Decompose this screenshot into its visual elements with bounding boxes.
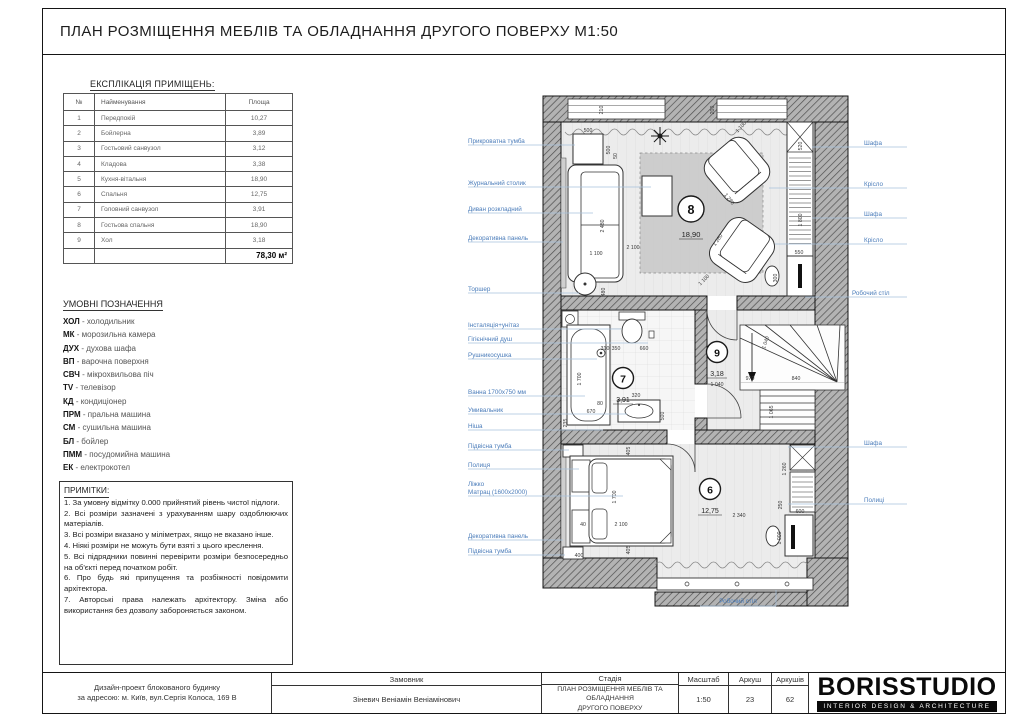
wall-panel bbox=[561, 450, 566, 554]
explication-heading: ЕКСПЛІКАЦІЯ ПРИМІЩЕНЬ: bbox=[90, 79, 215, 91]
page-title: ПЛАН РОЗМІЩЕННЯ МЕБЛІВ ТА ОБЛАДНАННЯ ДРУ… bbox=[60, 23, 618, 40]
dim-label: 1 260 bbox=[782, 462, 788, 475]
dim-label: 80 bbox=[597, 401, 603, 407]
note-item: 1. За умовну відмітку 0.000 прийнятий рі… bbox=[64, 498, 288, 509]
long-desk bbox=[657, 578, 813, 590]
dim-label: 1 000 bbox=[777, 531, 783, 544]
sheet-label: Аркуш bbox=[729, 673, 771, 686]
table-row: 3Гостьовий санвузол3,12 bbox=[64, 141, 293, 156]
legend-item: СВЧ - мікрохвильова піч bbox=[63, 368, 170, 381]
legend-heading: УМОВНІ ПОЗНАЧЕННЯ bbox=[63, 299, 163, 311]
dim-label: 400 bbox=[575, 553, 584, 559]
note-item: 2. Всі розміри зазначені з урахуванням ш… bbox=[64, 509, 288, 531]
sofa bbox=[568, 165, 623, 282]
dim-label: 200 bbox=[710, 106, 716, 115]
dim-label: 500 bbox=[584, 128, 593, 134]
callout-label: Підвісна тумба bbox=[468, 547, 512, 555]
callout-label: Журнальний столик bbox=[468, 179, 526, 187]
callout-label: Робочий стіл bbox=[719, 597, 757, 605]
dim-label: 660 bbox=[640, 346, 649, 352]
dim-label: 235 bbox=[563, 419, 569, 428]
sheet-value: 23 bbox=[729, 686, 771, 713]
sheets-value: 62 bbox=[772, 686, 808, 713]
note-item: 5. Всі підрядники повинні перевірити роз… bbox=[64, 552, 288, 574]
callout-label: Матрац (1600х2000) bbox=[468, 489, 527, 496]
logo-subtitle: INTERIOR DESIGN & ARCHITECTURE bbox=[817, 701, 996, 712]
total-area: 78,30 м² bbox=[226, 248, 293, 263]
table-row: 2Бойлерна3,89 bbox=[64, 126, 293, 141]
dim-label: 250 bbox=[778, 501, 784, 510]
callout-label: Крісло bbox=[864, 180, 883, 188]
legend-item: МК - морозильна камера bbox=[63, 328, 170, 341]
shelf bbox=[572, 460, 590, 492]
room-number: 9 bbox=[714, 348, 720, 360]
dim-label: 480 bbox=[601, 288, 607, 297]
pillow bbox=[592, 463, 607, 493]
table-total-row: 78,30 м² bbox=[64, 248, 293, 263]
floor-lamp-dot bbox=[584, 283, 587, 286]
dim-label: 50 bbox=[613, 153, 619, 159]
sheets-label: Аркушів bbox=[772, 673, 808, 686]
note-item: 4. Ніякі розміри не можуть бути взяті з … bbox=[64, 541, 288, 552]
legend-item: КД - кондиціонер bbox=[63, 395, 170, 408]
customer-cell: Замовник Зіневич Веніамін Веніамінович bbox=[271, 673, 541, 713]
studio-logo: BORISSTUDIO INTERIOR DESIGN & ARCHITECTU… bbox=[808, 673, 1005, 713]
room-number: 8 bbox=[688, 203, 695, 217]
project-description: Дизайн-проект блокованого будинку за адр… bbox=[43, 673, 271, 713]
legend-item: БЛ - бойлер bbox=[63, 435, 170, 448]
stage-cell: Стадія ПЛАН РОЗМІЩЕННЯ МЕБЛІВ ТА ОБЛАДНА… bbox=[541, 673, 678, 713]
explication-table: № Найменування Площа 1Передпокій10,27 2Б… bbox=[63, 93, 293, 264]
sheet-cell: Аркуш 23 bbox=[728, 673, 771, 713]
dim-label: 840 bbox=[792, 376, 801, 382]
stage-label: Стадія bbox=[542, 673, 678, 685]
callout-label: Полиця bbox=[468, 462, 490, 469]
callout-label: Декоративна панель bbox=[468, 235, 529, 242]
legend-item: ПРМ - пральна машина bbox=[63, 408, 170, 421]
legend-item: ПММ - посудомийна машина bbox=[63, 448, 170, 461]
dim-label: 300 bbox=[773, 274, 779, 283]
customer-value: Зіневич Веніамін Веніамінович bbox=[272, 686, 541, 713]
col-area: Площа bbox=[226, 94, 293, 111]
room-number: 7 bbox=[620, 374, 626, 386]
scale-label: Масштаб bbox=[679, 673, 728, 686]
wardrobe bbox=[790, 445, 815, 512]
callout-label: Гігієнічний душ bbox=[468, 335, 512, 343]
dim-label: 210 bbox=[599, 106, 605, 115]
table-row: 5Кухня-вітальня18,90 bbox=[64, 172, 293, 187]
callout-label: Шафа bbox=[864, 440, 882, 447]
callout-label: Ванна 1700х750 мм bbox=[468, 389, 526, 396]
legend-list: ХОЛ - холодильник МК - морозильна камера… bbox=[63, 315, 170, 475]
dim-label: 320 bbox=[632, 393, 641, 399]
dim-label: 1 700 bbox=[577, 372, 583, 385]
table-row: 6Спальня12,75 bbox=[64, 187, 293, 202]
dim-label: 405 bbox=[626, 447, 632, 456]
legend-item: СМ - сушильна машина bbox=[63, 421, 170, 434]
callout-label: Ніша bbox=[468, 422, 483, 430]
room-area: 12,75 bbox=[701, 508, 719, 515]
callout-label: Полиці bbox=[864, 496, 884, 504]
callout-label: Рушникосушка bbox=[468, 352, 512, 359]
bed bbox=[570, 456, 673, 546]
callout-label: Крісло bbox=[864, 236, 883, 244]
customer-label: Замовник bbox=[272, 673, 541, 686]
dim-label: 500 bbox=[660, 412, 666, 421]
callout-label: Інсталяція+унітаз bbox=[468, 321, 519, 329]
pillow bbox=[592, 509, 607, 539]
dim-label: 2 100 bbox=[627, 245, 640, 251]
wall-panel bbox=[561, 158, 566, 288]
note-item: 6. Про будь які припущення та розбіжност… bbox=[64, 573, 288, 595]
callout-label: Шафа bbox=[864, 140, 882, 147]
legend-item: ЕК - електрокотел bbox=[63, 461, 170, 474]
room-area: 3,18 bbox=[710, 371, 724, 378]
table-row: 9Хол3,18 bbox=[64, 233, 293, 248]
table-header-row: № Найменування Площа bbox=[64, 94, 293, 111]
dim-label: 40 bbox=[580, 522, 586, 528]
callout-label: Ліжко bbox=[468, 480, 485, 488]
table-row: 8Гостьова спальня18,90 bbox=[64, 218, 293, 233]
dim-label: 405 bbox=[626, 546, 632, 555]
dim-label: 970 bbox=[746, 376, 755, 382]
monitor bbox=[791, 525, 795, 549]
room-area: 3,91 bbox=[616, 397, 630, 404]
dim-label: 2 340 bbox=[733, 513, 746, 519]
callout-label: Робочий стіл bbox=[852, 289, 890, 297]
dim-label: 500 bbox=[606, 146, 612, 155]
logo-text: BORISSTUDIO bbox=[817, 675, 996, 700]
col-name: Найменування bbox=[95, 94, 226, 111]
hygienic-shower bbox=[649, 331, 654, 338]
col-num: № bbox=[64, 94, 95, 111]
callout-label: Торшер bbox=[468, 286, 491, 293]
table-row: 7Головний санвузол3,91 bbox=[64, 202, 293, 217]
room-number: 6 bbox=[707, 485, 713, 497]
dim-label: 2 100 bbox=[615, 522, 628, 528]
scale-cell: Масштаб 1:50 bbox=[678, 673, 728, 713]
callout-label: Прикроватна тумба bbox=[468, 137, 525, 145]
dim-label: 600 bbox=[796, 509, 805, 515]
legend-item: ВП - варочна поверхня bbox=[63, 355, 170, 368]
title-band: ПЛАН РОЗМІЩЕННЯ МЕБЛІВ ТА ОБЛАДНАННЯ ДРУ… bbox=[42, 8, 1006, 55]
notes-heading: ПРИМІТКИ: bbox=[64, 485, 109, 498]
dim-label: 1 065 bbox=[769, 405, 775, 418]
legend-item: TV - телевізор bbox=[63, 381, 170, 394]
dim-label: 1 040 bbox=[711, 382, 724, 388]
room-area: 18,90 bbox=[682, 230, 701, 239]
legend-item: ХОЛ - холодильник bbox=[63, 315, 170, 328]
callout-label: Декоративна панель bbox=[468, 533, 529, 540]
hanging-cabinet bbox=[563, 445, 583, 457]
dim-label: 2 480 bbox=[600, 219, 606, 232]
note-item: 7. Авторські права належать архітектору.… bbox=[64, 595, 288, 617]
drawing-sheet: { "title": "ПЛАН РОЗМІЩЕННЯ МЕБЛІВ ТА ОБ… bbox=[0, 0, 1024, 724]
dim-label: 520 bbox=[798, 142, 804, 151]
notes-box: ПРИМІТКИ: 1. За умовну відмітку 0.000 пр… bbox=[59, 481, 293, 665]
coffee-table bbox=[642, 176, 672, 216]
dim-label: 350 bbox=[612, 346, 621, 352]
table-row: 4Кладова3,38 bbox=[64, 156, 293, 171]
stage-value: ПЛАН РОЗМІЩЕННЯ МЕБЛІВ ТА ОБЛАДНАННЯ ДРУ… bbox=[542, 685, 678, 714]
note-item: 3. Всі розміри вказано у міліметрах, якщ… bbox=[64, 530, 288, 541]
dim-label: 310 bbox=[601, 346, 610, 352]
callout-label: Шафа bbox=[864, 211, 882, 218]
legend-item: ДУХ - духова шафа bbox=[63, 342, 170, 355]
table-row: 1Передпокій10,27 bbox=[64, 111, 293, 126]
callout-label: Підвісна тумба bbox=[468, 442, 512, 450]
dim-label: 1 700 bbox=[612, 490, 618, 503]
callout-label: Умивальник bbox=[468, 407, 503, 414]
monitor bbox=[798, 264, 802, 288]
dim-label: 1 100 bbox=[590, 251, 603, 257]
dim-label: 1 800 bbox=[798, 213, 804, 226]
scale-value: 1:50 bbox=[679, 686, 728, 713]
bedside-table bbox=[573, 134, 603, 164]
floor-plan: 8 18,90 9 3,18 7 3,91 6 12,75 500 500 50… bbox=[455, 88, 1015, 623]
dim-label: 550 bbox=[795, 250, 804, 256]
sheets-cell: Аркушів 62 bbox=[771, 673, 808, 713]
title-block: Дизайн-проект блокованого будинку за адр… bbox=[42, 672, 1006, 714]
callout-label: Диван розкладний bbox=[468, 205, 522, 213]
